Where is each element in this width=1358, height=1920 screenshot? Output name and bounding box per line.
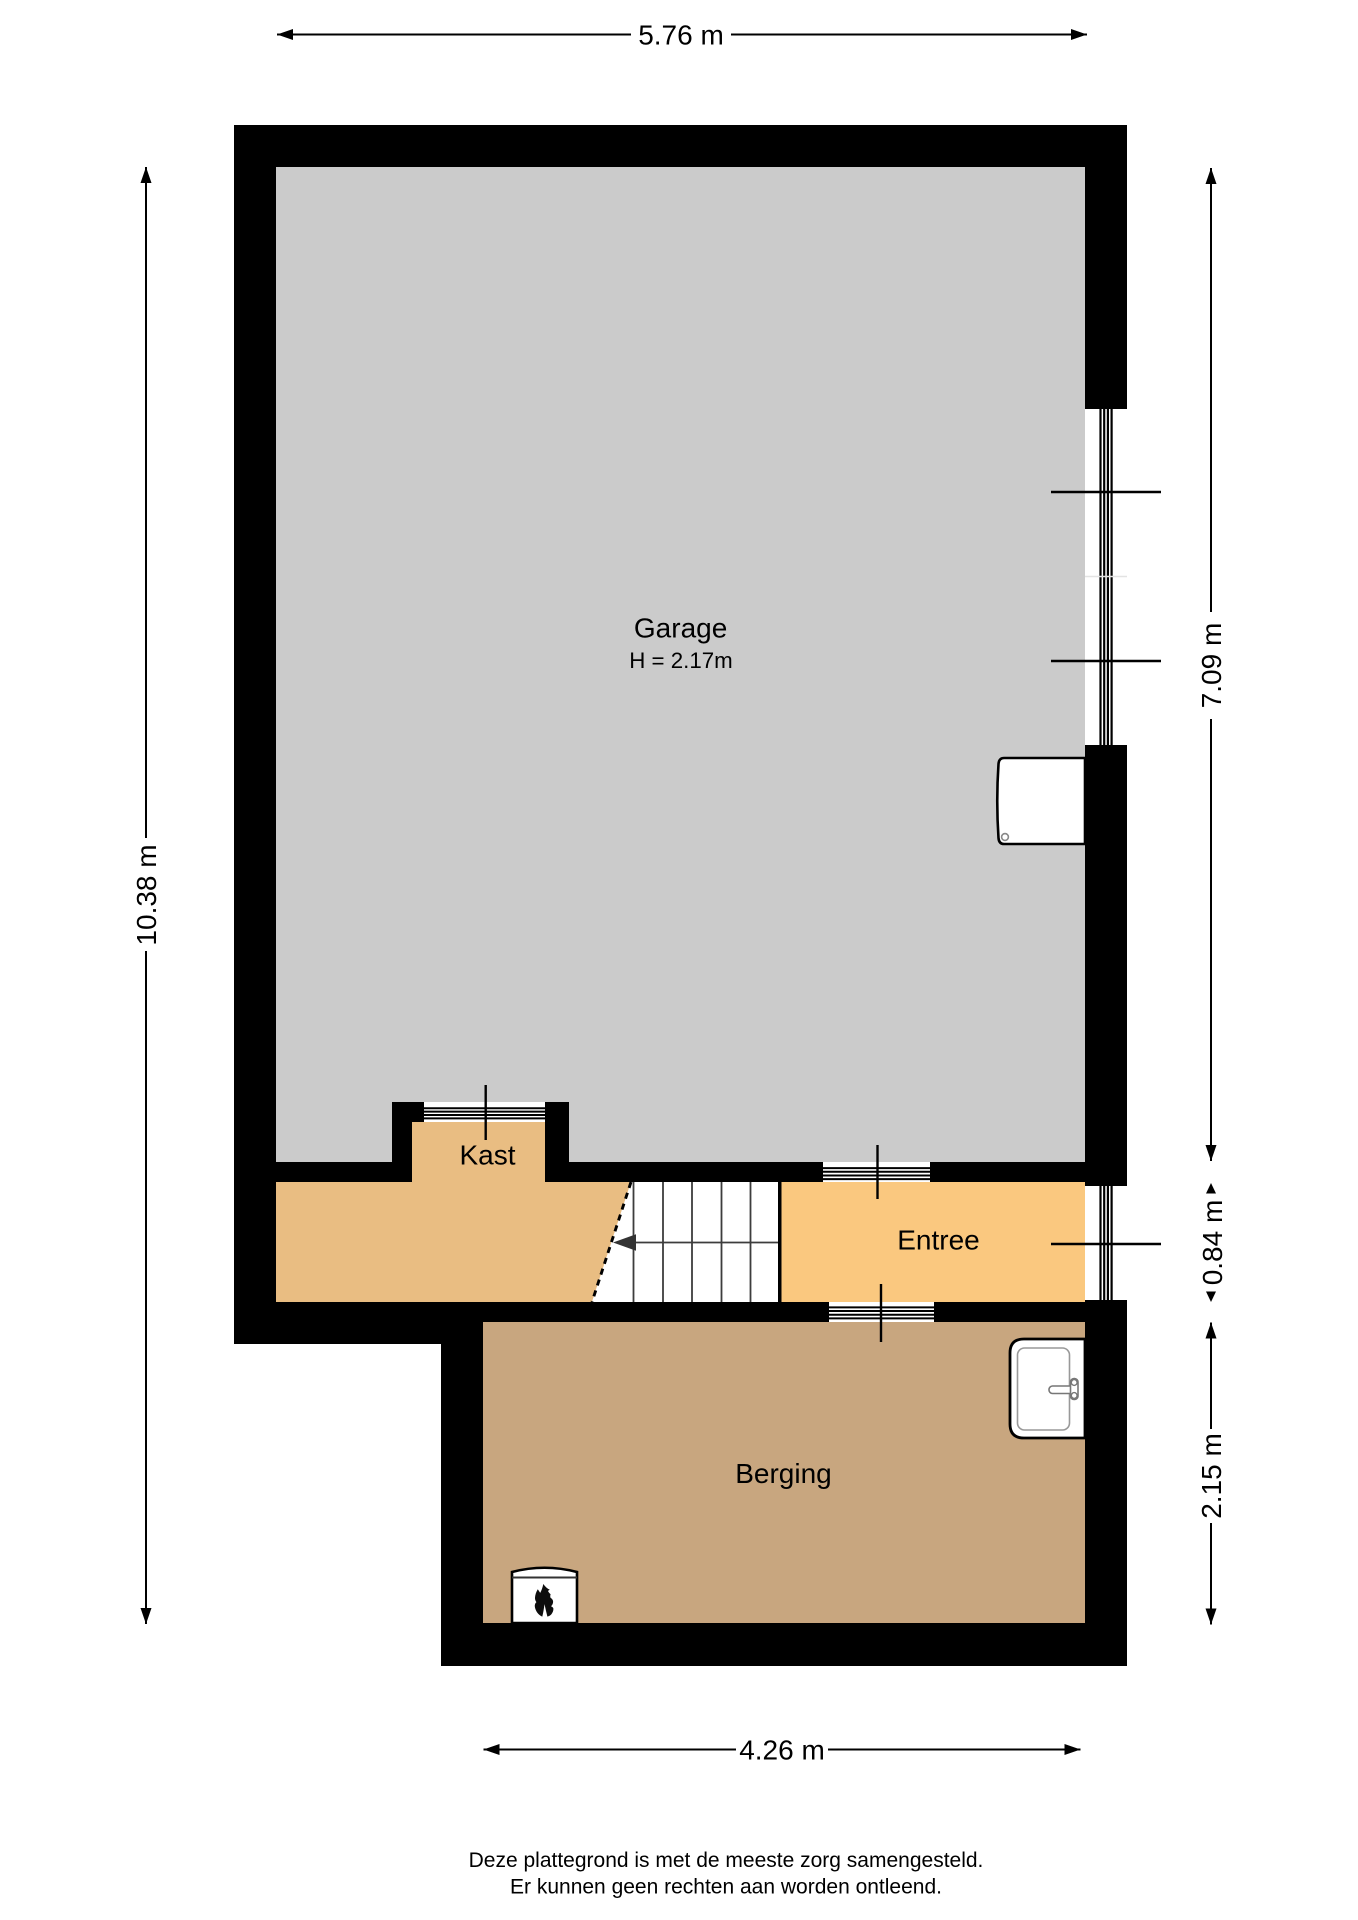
svg-text:5.76 m: 5.76 m [638,20,724,51]
svg-text:7.09 m: 7.09 m [1196,623,1227,709]
svg-text:Entree: Entree [897,1225,980,1256]
svg-text:0.84 m: 0.84 m [1197,1200,1228,1286]
svg-text:Garage: Garage [634,613,727,644]
svg-text:4.26 m: 4.26 m [739,1735,825,1766]
svg-text:10.38 m: 10.38 m [131,844,162,945]
svg-text:Kast: Kast [459,1140,515,1171]
svg-text:Berging: Berging [735,1458,832,1489]
svg-text:Deze plattegrond is met de mee: Deze plattegrond is met de meeste zorg s… [469,1849,984,1872]
svg-text:2.15 m: 2.15 m [1196,1433,1227,1519]
svg-text:Er kunnen geen rechten aan wor: Er kunnen geen rechten aan worden ontlee… [510,1876,942,1899]
svg-text:H = 2.17m: H = 2.17m [629,648,732,673]
